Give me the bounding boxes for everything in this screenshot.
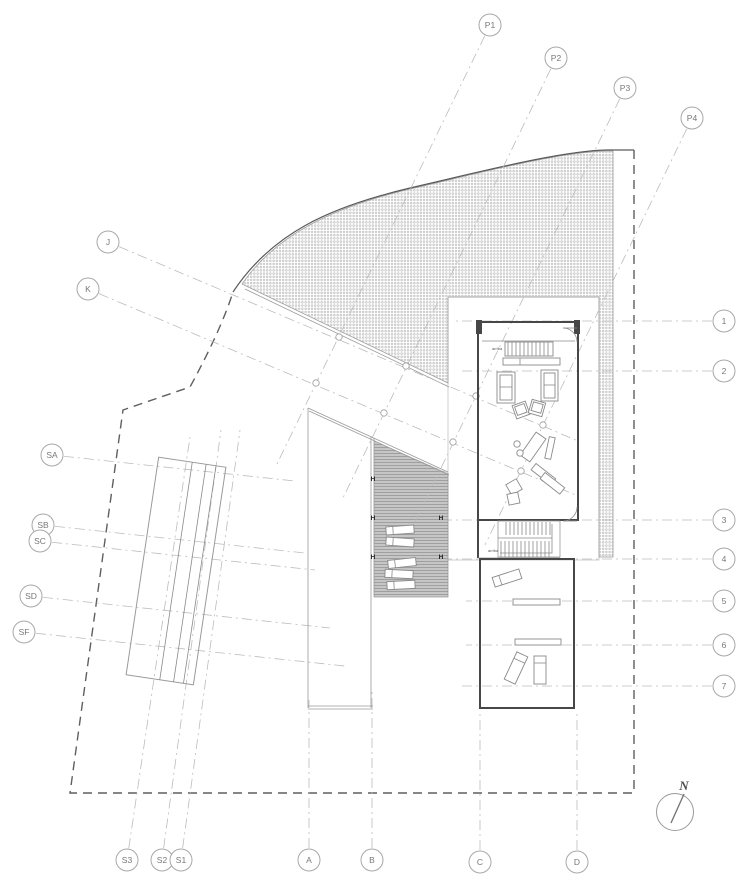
column-marker-h: H (371, 476, 376, 483)
grid-bubble-label-3: 3 (722, 515, 727, 525)
grid-bubble-label-SC: SC (34, 536, 46, 546)
grid-bubble-label-K: K (85, 284, 91, 294)
grid-bubble-label-P1: P1 (485, 20, 496, 30)
grid-bubble-label-SB: SB (37, 520, 49, 530)
grid-bubble-label-2: 2 (722, 366, 727, 376)
column-marker-h: H (371, 515, 376, 522)
column-marker-h: H (371, 554, 376, 561)
grid-line-S1 (183, 430, 240, 848)
grid-line-S3 (129, 437, 190, 848)
column-marker-h: H (439, 554, 444, 561)
north-label: N (678, 778, 689, 793)
slanted-structure (126, 457, 226, 685)
grid-bubble-label-SF: SF (19, 627, 30, 637)
grid-bubble-label-5: 5 (722, 596, 727, 606)
stair-direction-label: arriba (488, 548, 499, 553)
grid-line-SC (52, 542, 315, 570)
stair-direction-label: arriba (492, 346, 503, 351)
grid-bubble-label-S1: S1 (176, 855, 187, 865)
column-marker-h: H (439, 515, 444, 522)
grid-bubble-label-P4: P4 (687, 113, 698, 123)
wall-pilaster (476, 320, 482, 334)
grid-bubble-label-D: D (574, 857, 580, 867)
grid-bubble-label-C: C (477, 857, 483, 867)
site-plan-canvas: P1P2P3P4JKSASBSCSDSF1234567S3S2S1ABCD (0, 0, 750, 888)
floor-plan-drawing: P1P2P3P4JKSASBSCSDSF1234567S3S2S1ABCD (0, 0, 750, 888)
grid-bubble-label-6: 6 (722, 640, 727, 650)
wall-pilaster (574, 320, 580, 334)
grid-line-SD (43, 597, 330, 628)
grid-line-S2 (164, 430, 221, 848)
grid-bubble-label-S3: S3 (122, 855, 133, 865)
grid-bubble-label-SD: SD (25, 591, 37, 601)
grid-bubble-label-4: 4 (722, 554, 727, 564)
north-arrow: N (657, 778, 694, 831)
grid-bubble-label-1: 1 (722, 316, 727, 326)
grid-bubble-label-J: J (106, 237, 110, 247)
grid-bubble-label-S2: S2 (157, 855, 168, 865)
grid-bubble-label-SA: SA (46, 450, 58, 460)
grid-bubble-label-P2: P2 (551, 53, 562, 63)
grid-bubble-label-A: A (306, 855, 312, 865)
grid-bubble-label-7: 7 (722, 681, 727, 691)
grid-bubble-label-B: B (369, 855, 375, 865)
grid-line-SB (55, 526, 305, 553)
grid-bubble-label-P3: P3 (620, 83, 631, 93)
